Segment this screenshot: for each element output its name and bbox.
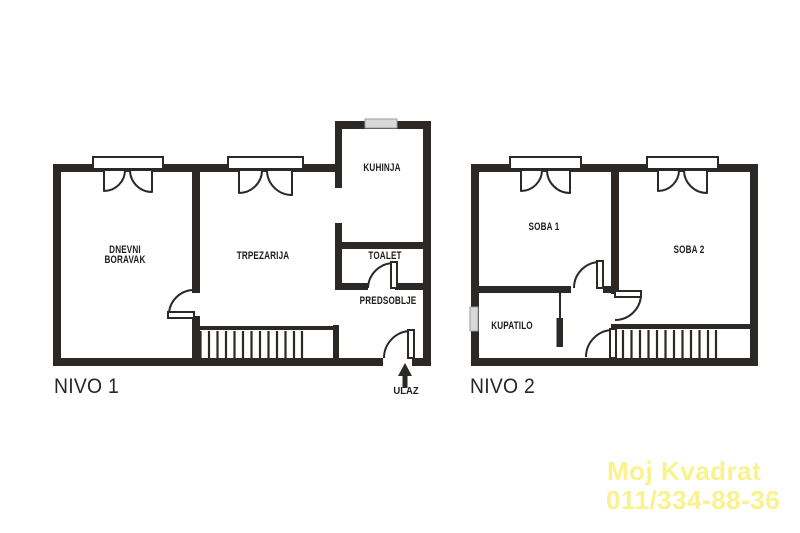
door-icon-living-dining [168, 290, 194, 318]
stairs-icon-level2 [611, 324, 750, 358]
room-label-predsoblje: PREDSOBLJE [350, 296, 427, 306]
window-icon-dining-room [228, 157, 303, 195]
level-2-plan [470, 157, 758, 366]
level-2-title: NIVO 2 [470, 376, 541, 397]
window-icon-soba2 [647, 157, 718, 193]
room-label-kuhinja: KUHINJA [357, 163, 407, 173]
room-label-soba-1: SOBA 1 [523, 222, 565, 232]
entrance-label: ULAZ [392, 385, 420, 397]
door-icon-soba2 [615, 291, 641, 320]
door-icon-soba1 [574, 261, 603, 288]
room-label-dnevni-boravak: DNEVNI BORAVAK [97, 245, 152, 265]
window-icon-kupatilo [470, 307, 478, 331]
room-label-soba-2: SOBA 2 [668, 245, 710, 255]
window-icon-living-room [93, 157, 163, 192]
room-label-toalet: TOALET [363, 251, 408, 261]
door-icon-kupatilo [586, 329, 616, 358]
window-icon-kitchen [365, 119, 397, 128]
door-icon-entrance [384, 330, 414, 358]
stairs-icon-level1 [196, 326, 336, 358]
room-label-kupatilo: KUPATILO [484, 321, 540, 331]
level-1-title: NIVO 1 [54, 376, 125, 397]
floorplan-canvas: DNEVNI BORAVAK TRPEZARIJA KUHINJA TOALET… [0, 0, 800, 533]
watermark-line1: Moj Kvadrat [607, 458, 761, 484]
floorplan-drawing [0, 0, 800, 533]
room-label-trpezarija: TRPEZARIJA [227, 251, 298, 261]
door-icon-toilet [368, 262, 397, 288]
partition-kupatilo [557, 293, 564, 347]
watermark-line2: 011/334-88-36 [606, 487, 780, 513]
window-icon-soba1 [510, 157, 581, 193]
